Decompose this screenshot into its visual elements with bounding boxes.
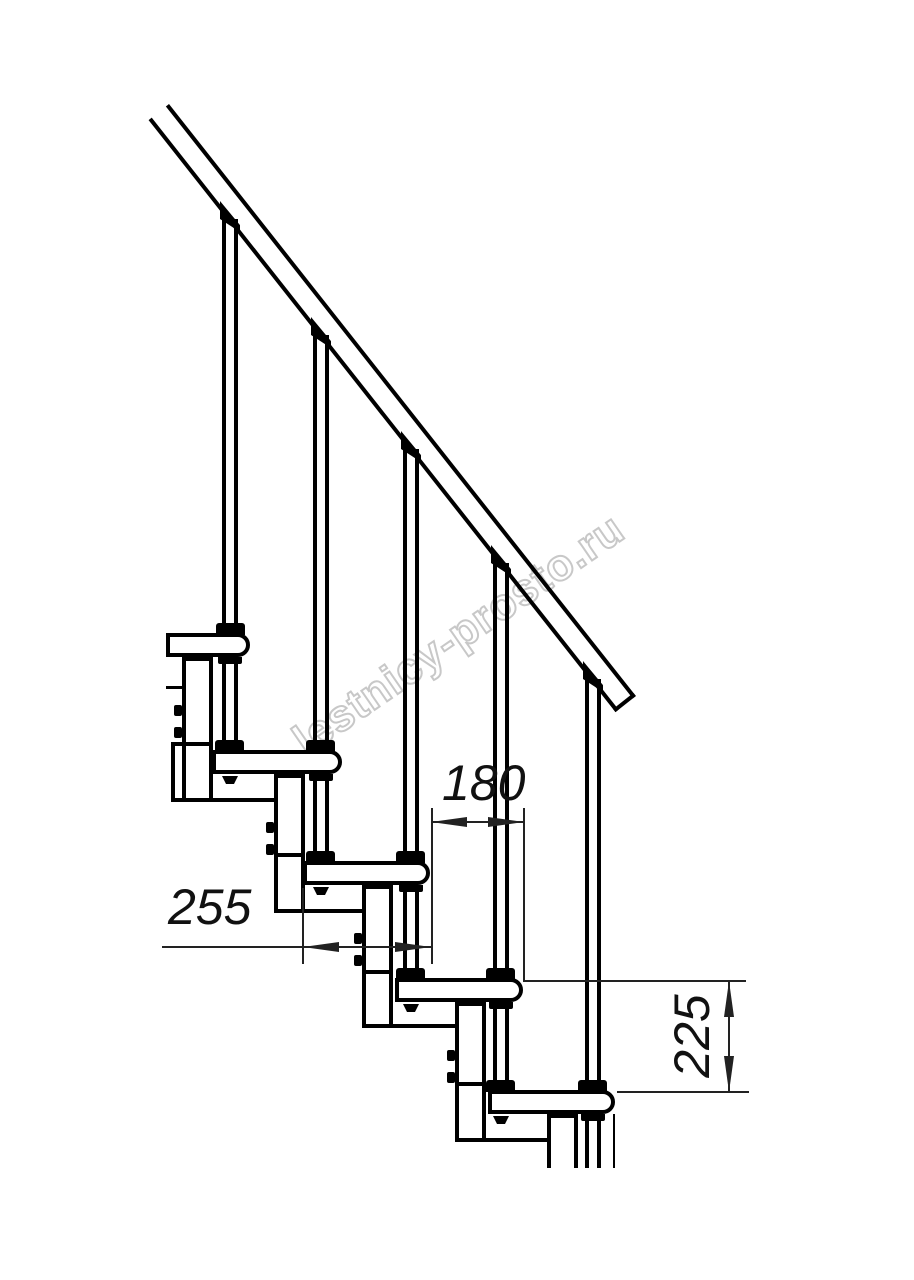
- module-bolt: [354, 933, 362, 944]
- spine-module: [547, 1114, 578, 1168]
- post-under-tread: [403, 890, 419, 970]
- post-under-tread: [493, 1007, 509, 1082]
- post-under-tread: [313, 779, 329, 853]
- tread: [395, 978, 523, 1002]
- dimension-line-255: [162, 946, 432, 948]
- tread: [488, 1090, 615, 1114]
- module-base-line: [305, 909, 362, 913]
- module-base-line: [393, 1024, 455, 1028]
- spine-module-divider: [362, 970, 393, 974]
- spine-module: [274, 774, 305, 913]
- through-bolt-nut: [313, 887, 329, 895]
- dimension-arrow: [431, 817, 467, 827]
- module-bolt: [266, 822, 274, 833]
- dimension-arrow: [395, 942, 431, 952]
- baluster-foot: [578, 1080, 607, 1092]
- module-base-line: [486, 1138, 547, 1142]
- extension-line: [525, 980, 746, 982]
- extension-line: [523, 808, 525, 982]
- post-under-tread: [585, 1119, 601, 1168]
- spine-module-divider: [455, 1082, 486, 1086]
- through-bolt-nut: [403, 1004, 419, 1012]
- dimension-arrow: [488, 817, 524, 827]
- baluster-foot: [396, 968, 425, 980]
- staircase-drawing: lestnicy-prosto.ru: [0, 0, 914, 1280]
- post-under-cap: [581, 1114, 605, 1121]
- spine-module-sleeve: [171, 742, 186, 802]
- baluster: [313, 335, 329, 742]
- baluster-foot: [216, 623, 245, 635]
- module-bolt: [447, 1072, 455, 1083]
- post-under-cap: [309, 774, 333, 781]
- spine-module: [182, 657, 213, 802]
- module-bolt: [174, 705, 182, 716]
- dimension-arrow: [724, 981, 734, 1017]
- module-bolt: [354, 955, 362, 966]
- spine-module-divider: [182, 742, 213, 746]
- dimension-arrow: [303, 942, 339, 952]
- spine-module-divider: [274, 853, 305, 857]
- module-base-line: [213, 798, 274, 802]
- baluster: [222, 219, 238, 625]
- extension-line: [302, 888, 304, 964]
- tread: [212, 750, 342, 774]
- baluster-foot: [486, 968, 515, 980]
- spine-module: [362, 885, 393, 1028]
- baluster-foot: [215, 740, 244, 752]
- tread: [303, 861, 430, 885]
- module-bolt: [266, 844, 274, 855]
- module-bolt: [447, 1050, 455, 1061]
- through-bolt-nut: [222, 776, 238, 784]
- extension-line: [431, 808, 433, 964]
- through-bolt-nut: [493, 1116, 509, 1124]
- baluster-foot: [306, 740, 335, 752]
- baluster-foot: [486, 1080, 515, 1092]
- dimension-label-225: 225: [667, 994, 717, 1077]
- post-under-cap: [489, 1002, 513, 1009]
- spine-module-tab: [166, 686, 182, 689]
- post-under-cap: [399, 885, 423, 892]
- post-under-cap: [218, 657, 242, 664]
- dimension-label-255: 255: [168, 882, 251, 932]
- dimension-label-180: 180: [442, 758, 525, 808]
- cut-edge-line: [613, 1114, 615, 1168]
- baluster-foot: [396, 851, 425, 863]
- baluster: [403, 449, 419, 853]
- spine-module: [455, 1002, 486, 1142]
- module-bolt: [174, 727, 182, 738]
- tread: [166, 633, 250, 657]
- dimension-arrow: [724, 1056, 734, 1092]
- baluster: [585, 679, 601, 1082]
- post-under-tread: [222, 662, 238, 742]
- baluster-foot: [306, 851, 335, 863]
